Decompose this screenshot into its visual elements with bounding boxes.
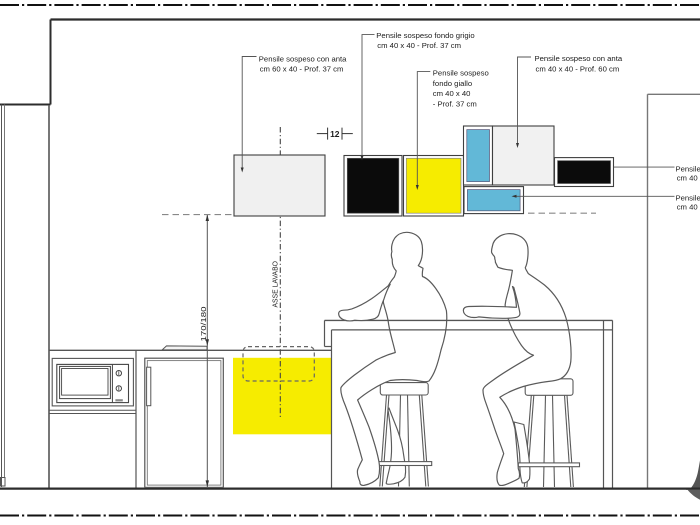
svg-text:cm 60 x 40 - Prof. 37 cm: cm 60 x 40 - Prof. 37 cm	[260, 65, 344, 74]
svg-text:ASSE LAVABO: ASSE LAVABO	[273, 260, 280, 307]
svg-text:cm 40 x 40: cm 40 x 40	[677, 203, 700, 212]
svg-text:Pensile sospeso: Pensile sospeso	[676, 194, 700, 203]
svg-text:cm 40 x 40: cm 40 x 40	[677, 173, 700, 182]
svg-text:cm 40 x 40 - Prof. 37 cm: cm 40 x 40 - Prof. 37 cm	[377, 41, 461, 50]
svg-text:Pensile sospeso con anta: Pensile sospeso con anta	[259, 54, 347, 63]
svg-text:Pensile sospeso con anta: Pensile sospeso con anta	[535, 54, 623, 63]
svg-text:12: 12	[330, 129, 340, 139]
svg-text:Pensile sospeso fondo grigio: Pensile sospeso fondo grigio	[376, 31, 474, 40]
svg-text:- Prof. 37 cm: - Prof. 37 cm	[433, 100, 477, 109]
svg-text:Pensile sospeso: Pensile sospeso	[433, 69, 489, 78]
svg-text:cm 40 x 40 - Prof. 60 cm: cm 40 x 40 - Prof. 60 cm	[536, 64, 620, 73]
svg-text:fondo giallo: fondo giallo	[433, 79, 472, 88]
svg-text:cm 40 x 40: cm 40 x 40	[433, 89, 471, 98]
svg-text:170/180: 170/180	[199, 307, 208, 342]
svg-text:Pensile sospeso: Pensile sospeso	[676, 164, 700, 173]
